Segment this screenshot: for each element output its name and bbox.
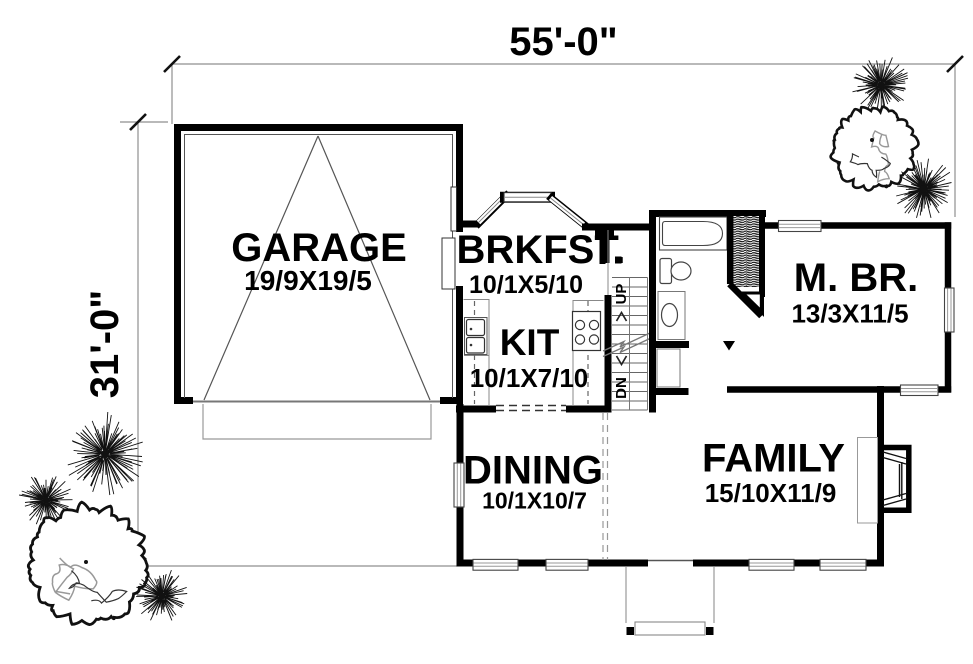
svg-text:55'-0": 55'-0" (509, 20, 618, 64)
svg-text:M. BR.: M. BR. (794, 256, 918, 300)
svg-text:15/10X11/9: 15/10X11/9 (705, 478, 837, 508)
svg-text:FAMILY: FAMILY (702, 437, 845, 481)
svg-text:31'-0": 31'-0" (83, 290, 127, 399)
svg-text:DN: DN (613, 377, 630, 399)
svg-text:KIT: KIT (500, 322, 560, 363)
svg-text:13/3X11/5: 13/3X11/5 (791, 299, 908, 329)
svg-text:10/1X5/10: 10/1X5/10 (469, 271, 583, 299)
svg-text:10/1X7/10: 10/1X7/10 (470, 363, 589, 393)
svg-text:10/1X10/7: 10/1X10/7 (482, 488, 587, 514)
svg-text:19/9X19/5: 19/9X19/5 (244, 265, 372, 296)
svg-text:UP: UP (613, 284, 630, 305)
svg-text:DINING: DINING (463, 449, 603, 493)
svg-text:BRKFST.: BRKFST. (457, 228, 626, 272)
svg-text:GARAGE: GARAGE (231, 226, 407, 270)
